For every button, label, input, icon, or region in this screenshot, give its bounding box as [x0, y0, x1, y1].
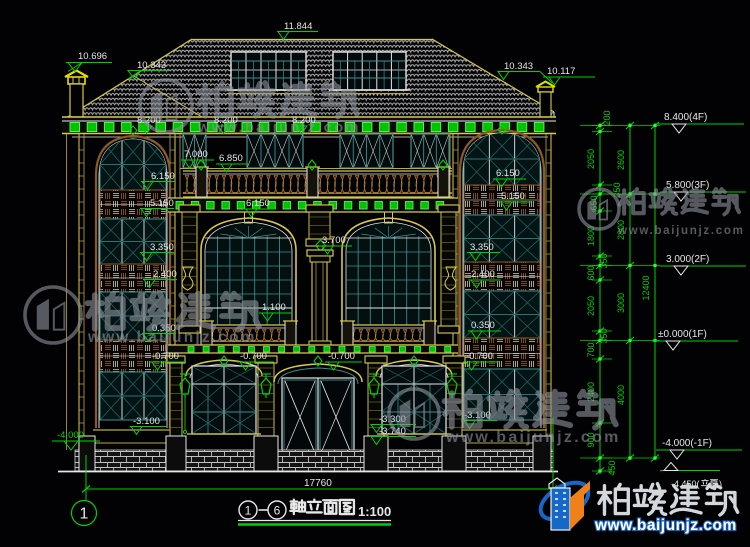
- svg-text:6.150: 6.150: [496, 168, 520, 179]
- svg-text:10.117: 10.117: [547, 66, 575, 77]
- svg-text:5.150: 5.150: [150, 198, 174, 209]
- svg-text:10.343: 10.343: [137, 60, 166, 71]
- svg-text:600: 600: [586, 265, 596, 280]
- svg-text:0.350: 0.350: [471, 320, 495, 331]
- svg-text:2600: 2600: [616, 150, 626, 170]
- svg-text:6.150: 6.150: [246, 198, 270, 209]
- svg-text:2.400: 2.400: [471, 269, 495, 280]
- svg-text:-0.700: -0.700: [466, 351, 493, 362]
- svg-text:350: 350: [599, 328, 609, 343]
- svg-text:2050: 2050: [586, 149, 596, 169]
- svg-text:-4.000: -4.000: [57, 430, 84, 441]
- svg-text:3.350: 3.350: [470, 242, 494, 253]
- svg-text:7.000: 7.000: [184, 149, 208, 160]
- svg-text:3000: 3000: [616, 293, 626, 313]
- svg-text:10.343: 10.343: [504, 61, 533, 72]
- svg-text:350: 350: [599, 253, 609, 268]
- svg-text:3.700: 3.700: [322, 235, 346, 246]
- svg-text:5.150: 5.150: [501, 191, 525, 202]
- svg-text:6.150: 6.150: [151, 171, 175, 182]
- svg-text:3.350: 3.350: [150, 242, 174, 253]
- svg-text:www.baijunjz.com: www.baijunjz.com: [445, 429, 621, 446]
- svg-text:1:100: 1:100: [358, 504, 391, 519]
- svg-text:1: 1: [80, 506, 89, 523]
- svg-text:-0.700: -0.700: [152, 351, 179, 362]
- svg-text:11.844: 11.844: [284, 21, 312, 32]
- svg-text:www.baijunjz.com: www.baijunjz.com: [197, 120, 361, 136]
- svg-text:200: 200: [602, 110, 612, 125]
- svg-text:450: 450: [607, 460, 617, 475]
- svg-text:8.400(4F): 8.400(4F): [664, 112, 707, 123]
- svg-text:10.696: 10.696: [78, 51, 107, 62]
- svg-text:6.850: 6.850: [219, 153, 243, 164]
- svg-text:12400: 12400: [641, 275, 651, 300]
- svg-text:-0.700: -0.700: [240, 351, 267, 362]
- svg-text:www.baijunjz.com: www.baijunjz.com: [594, 517, 737, 534]
- svg-text:±0.000(1F): ±0.000(1F): [658, 329, 707, 340]
- svg-text:-4.000(-1F): -4.000(-1F): [662, 438, 712, 449]
- svg-text:6: 6: [274, 504, 281, 518]
- svg-text:2050: 2050: [586, 296, 596, 316]
- svg-text:-3.100: -3.100: [133, 416, 160, 427]
- svg-text:www.baijunjz.com: www.baijunjz.com: [87, 329, 257, 346]
- svg-text:700: 700: [586, 342, 596, 357]
- svg-text:www.baijunjz.com: www.baijunjz.com: [617, 225, 745, 237]
- svg-text:1.100: 1.100: [262, 302, 286, 313]
- svg-text:4000: 4000: [616, 385, 626, 405]
- svg-text:1: 1: [245, 504, 252, 518]
- svg-text:2.400: 2.400: [153, 269, 177, 280]
- svg-text:3.000(2F): 3.000(2F): [666, 254, 709, 265]
- svg-text:17760: 17760: [304, 478, 332, 489]
- svg-text:-0.700: -0.700: [328, 351, 355, 362]
